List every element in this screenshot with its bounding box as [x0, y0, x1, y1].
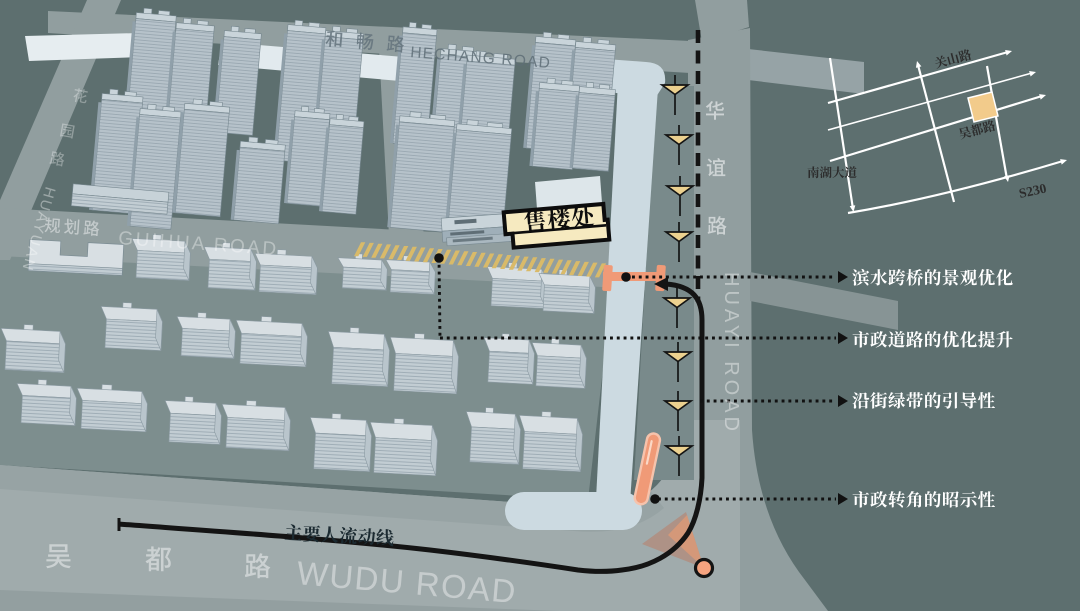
svg-text:HUAYI ROAD: HUAYI ROAD	[720, 272, 742, 435]
